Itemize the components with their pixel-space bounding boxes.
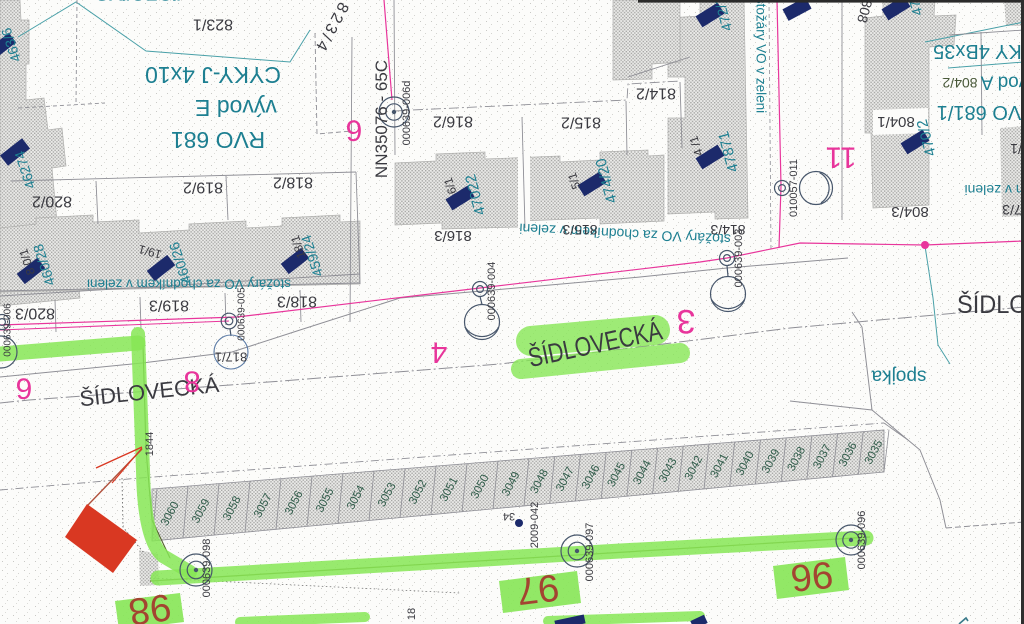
svg-text:817/1: 817/1 bbox=[215, 349, 248, 364]
svg-text:CYKY-J 4x10: CYKY-J 4x10 bbox=[145, 62, 281, 88]
svg-text:6: 6 bbox=[16, 372, 33, 405]
svg-text:NN35076 - 65C: NN35076 - 65C bbox=[372, 60, 391, 178]
svg-text:815/3: 815/3 bbox=[562, 222, 597, 238]
svg-text:010057-011: 010057-011 bbox=[788, 159, 800, 217]
svg-text:vývod A: vývod A bbox=[980, 71, 1024, 92]
svg-text:2009-042: 2009-042 bbox=[529, 502, 541, 549]
svg-text:000639-097: 000639-097 bbox=[584, 523, 596, 582]
svg-text:AYKY 4Bx35: AYKY 4Bx35 bbox=[933, 40, 1024, 62]
svg-text:3: 3 bbox=[677, 302, 696, 340]
svg-text:816/3: 816/3 bbox=[434, 227, 472, 244]
svg-text:814/2: 814/2 bbox=[636, 84, 676, 101]
svg-text:98: 98 bbox=[126, 585, 174, 624]
svg-text:11: 11 bbox=[825, 141, 856, 174]
svg-text:6: 6 bbox=[346, 114, 363, 147]
svg-text:000639-098: 000639-098 bbox=[201, 539, 213, 598]
svg-text:47: 47 bbox=[906, 0, 926, 18]
svg-text:818/2: 818/2 bbox=[273, 173, 313, 190]
svg-text:rezerva: rezerva bbox=[94, 0, 181, 11]
svg-text:823/1: 823/1 bbox=[193, 15, 233, 32]
svg-text:819/3: 819/3 bbox=[149, 296, 189, 313]
svg-text:804/3: 804/3 bbox=[891, 203, 929, 220]
svg-text:/1: /1 bbox=[1010, 141, 1022, 157]
svg-text:816/2: 816/2 bbox=[433, 112, 473, 129]
svg-text:ŠÍDLOVE: ŠÍDLOVE bbox=[957, 290, 1024, 319]
svg-text:000639-006: 000639-006 bbox=[3, 303, 14, 357]
svg-text:96: 96 bbox=[789, 553, 835, 599]
svg-text:4: 4 bbox=[431, 336, 448, 369]
svg-text:804/2: 804/2 bbox=[942, 75, 977, 91]
svg-text:000639-003: 000639-003 bbox=[733, 229, 745, 288]
svg-text:stožáry VO v zeleni: stožáry VO v zeleni bbox=[753, 0, 768, 113]
svg-text:820/3: 820/3 bbox=[15, 304, 55, 321]
svg-text:34: 34 bbox=[503, 510, 515, 522]
svg-text:804/1: 804/1 bbox=[877, 113, 915, 130]
svg-text:97: 97 bbox=[514, 565, 561, 612]
svg-text:000639-004: 000639-004 bbox=[486, 262, 498, 321]
svg-text:818/3: 818/3 bbox=[277, 292, 317, 309]
svg-text:000639-006d: 000639-006d bbox=[401, 81, 413, 146]
svg-text:18: 18 bbox=[406, 608, 418, 620]
svg-text:819/2: 819/2 bbox=[183, 178, 223, 195]
svg-text:1844: 1844 bbox=[144, 432, 156, 456]
svg-text:RVO 681: RVO 681 bbox=[171, 127, 265, 153]
svg-text:820/2: 820/2 bbox=[32, 192, 72, 209]
svg-text:000639-005: 000639-005 bbox=[237, 287, 248, 341]
svg-text:000639-096: 000639-096 bbox=[856, 511, 868, 570]
svg-text:815/2: 815/2 bbox=[561, 113, 601, 130]
svg-text:vývod E: vývod E bbox=[195, 95, 277, 121]
svg-text:8: 8 bbox=[184, 365, 201, 398]
svg-text:7/3: 7/3 bbox=[1002, 202, 1022, 218]
svg-text:RVO 681/1: RVO 681/1 bbox=[937, 101, 1024, 123]
svg-text:m v zeleni: m v zeleni bbox=[964, 182, 1024, 198]
svg-text:spojka: spojka bbox=[871, 365, 926, 386]
